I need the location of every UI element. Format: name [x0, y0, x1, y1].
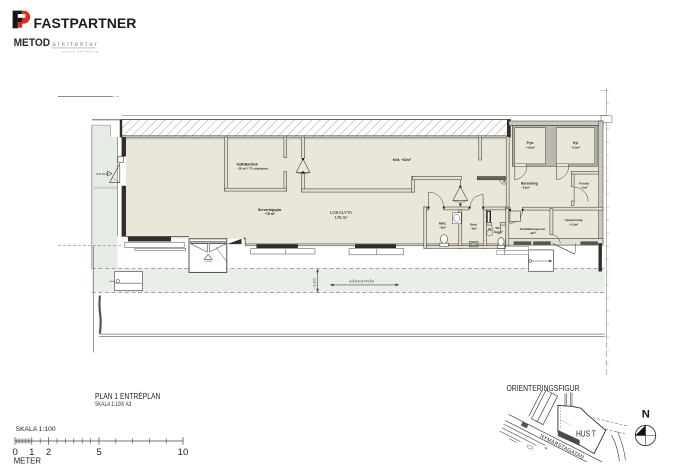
svg-text:METOD: METOD [14, 37, 51, 49]
svg-text:Serveringsyta: Serveringsyta [258, 208, 281, 212]
svg-text:~ 3,300: ~ 3,300 [312, 278, 316, 290]
svg-text:Kök ~52m²: Kök ~52m² [393, 158, 412, 162]
svg-text:~4,5m²: ~4,5m² [525, 145, 535, 149]
svg-text:~3m²: ~3m² [470, 226, 477, 230]
svg-text:~5m²: ~5m² [439, 225, 446, 229]
svg-text:ORIENTERINGSFIGUR: ORIENTERINGSFIGUR [507, 383, 580, 393]
svg-text:~78 m²: ~78 m² [264, 212, 275, 216]
svg-text:PLAN 1 ENTRÉPLAN: PLAN 1 ENTRÉPLAN [95, 391, 160, 401]
svg-text:N: N [642, 408, 650, 420]
svg-text:~9m²: ~9m² [529, 231, 536, 235]
svg-text:arkitekt SAR/MSA ab: arkitekt SAR/MSA ab [62, 49, 100, 53]
svg-text:10: 10 [178, 447, 189, 458]
svg-text:HUS T: HUS T [576, 430, 596, 439]
svg-text:~5m²: ~5m² [580, 186, 587, 190]
svg-text:METER: METER [14, 457, 42, 466]
svg-text:FASTPARTNER: FASTPARTNER [34, 15, 137, 31]
svg-text:SKALA 1:100: SKALA 1:100 [16, 426, 56, 433]
svg-text:ENTRÉ: ENTRÉ [204, 260, 212, 263]
svg-text:arkitekter: arkitekter [52, 41, 99, 48]
svg-text:~5,5m²: ~5,5m² [571, 145, 581, 149]
svg-text:~5,5m²: ~5,5m² [569, 222, 579, 226]
svg-text:178 m²: 178 m² [335, 215, 348, 220]
svg-text:5: 5 [96, 447, 101, 458]
svg-text:~2,4m²: ~2,4m² [493, 230, 503, 234]
svg-text:~18 m² / 72 sittplatser: ~18 m² / 72 sittplatser [237, 167, 269, 171]
svg-text:GÅNGSTRÅK: GÅNGSTRÅK [349, 279, 375, 284]
svg-text:2: 2 [46, 447, 51, 458]
svg-text:SKALA 1:100/ A3: SKALA 1:100/ A3 [95, 401, 132, 408]
svg-text:~13m²: ~13m² [521, 186, 530, 190]
svg-text:ENTRÉ: ENTRÉ [97, 171, 109, 176]
